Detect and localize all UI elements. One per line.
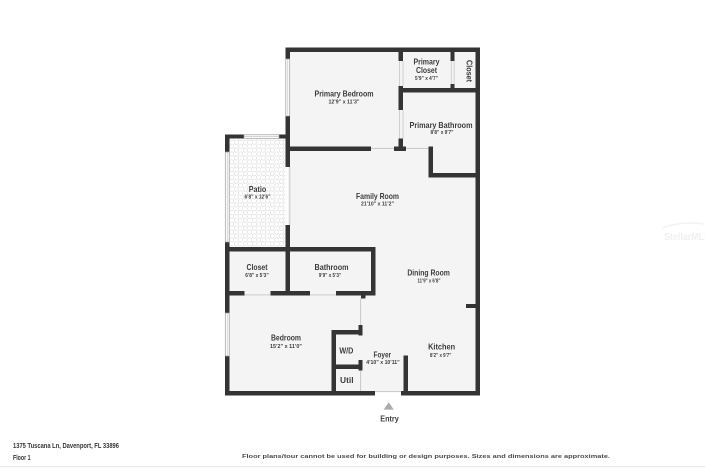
svg-text:StellarMLS: StellarMLS — [664, 231, 705, 243]
svg-text:Floor 1: Floor 1 — [13, 455, 31, 462]
svg-text:Entry: Entry — [380, 413, 399, 423]
svg-text:Util: Util — [340, 376, 354, 385]
svg-text:6’8” x 5’3”: 6’8” x 5’3” — [245, 273, 269, 279]
svg-text:9’9” x 5’3”: 9’9” x 5’3” — [319, 273, 342, 279]
svg-text:Kitchen: Kitchen — [428, 343, 455, 352]
svg-text:Primary Bedroom: Primary Bedroom — [315, 90, 374, 99]
svg-text:5’9” x 4’7”: 5’9” x 4’7” — [415, 76, 438, 82]
svg-text:Foyer: Foyer — [374, 350, 392, 359]
svg-text:8’8” x 9’7”: 8’8” x 9’7” — [431, 130, 454, 136]
svg-text:Bedroom: Bedroom — [271, 334, 301, 343]
svg-text:12’9” x 11’3”: 12’9” x 11’3” — [329, 100, 360, 106]
svg-text:Bathroom: Bathroom — [315, 263, 349, 272]
svg-text:15’2” x 11’0”: 15’2” x 11’0” — [270, 344, 302, 350]
svg-text:Floor plans/tour cannot be use: Floor plans/tour cannot be used for buil… — [242, 454, 611, 460]
svg-text:W/D: W/D — [339, 347, 353, 356]
svg-text:8’2” x 9’7”: 8’2” x 9’7” — [430, 353, 452, 359]
svg-text:6’8” x 12’6”: 6’8” x 12’6” — [245, 194, 271, 200]
svg-text:1375 Tuscana Ln, Davenport, FL: 1375 Tuscana Ln, Davenport, FL 33896 — [13, 443, 119, 450]
svg-text:Primary Bathroom: Primary Bathroom — [410, 121, 473, 130]
svg-text:Closet: Closet — [416, 66, 437, 75]
svg-text:Family Room: Family Room — [356, 192, 399, 201]
svg-text:11’9” x 6’8”: 11’9” x 6’8” — [418, 278, 441, 284]
svg-text:21’10” x 11’2”: 21’10” x 11’2” — [361, 202, 394, 208]
svg-text:Closet: Closet — [465, 60, 474, 82]
svg-text:Closet: Closet — [247, 263, 268, 272]
svg-text:4’10” x 10’11”: 4’10” x 10’11” — [366, 360, 400, 366]
svg-text:Dining Room: Dining Room — [407, 268, 450, 277]
svg-text:Patio: Patio — [249, 185, 267, 194]
